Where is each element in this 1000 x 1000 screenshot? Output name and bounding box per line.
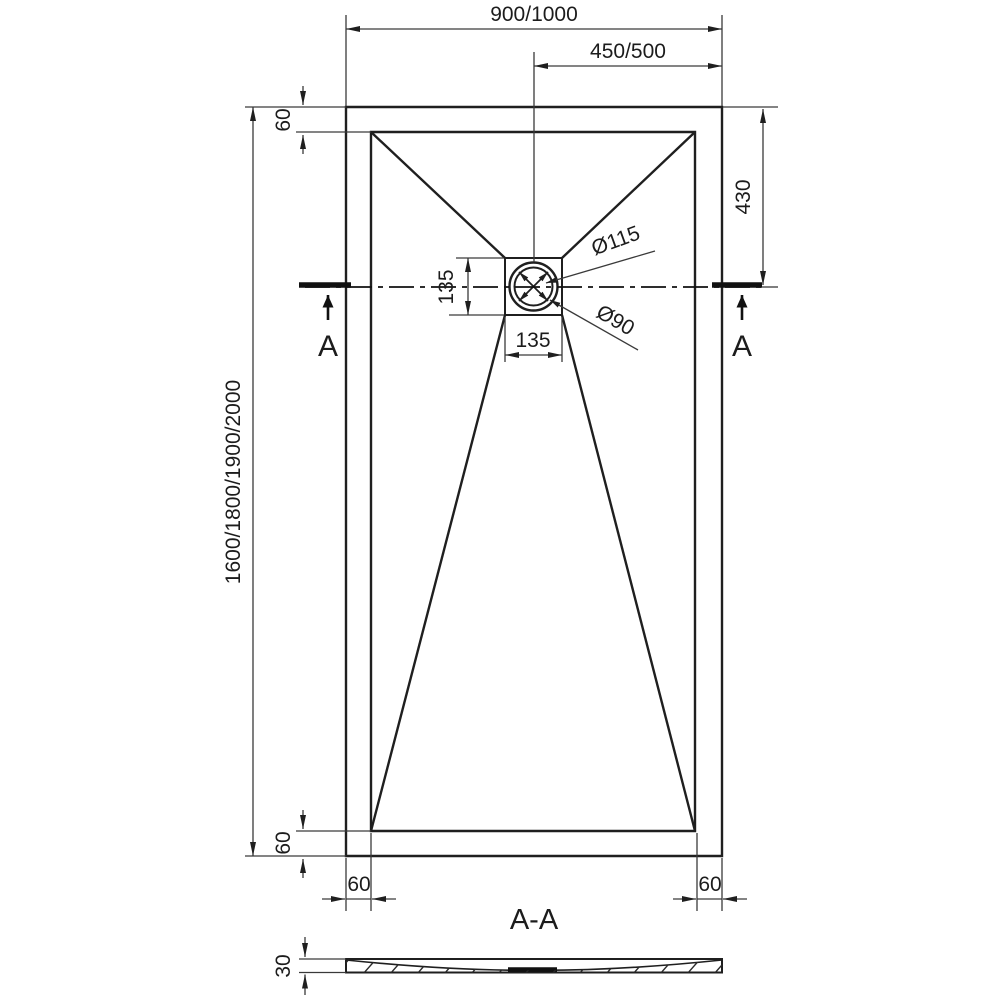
dim-thickness-label: 30 <box>272 954 295 977</box>
dim-drain-center-width: 450/500 <box>534 40 722 66</box>
technical-drawing-canvas: 900/1000 450/500 1600/1800/1900/2000 60 … <box>0 0 1000 1000</box>
dim-rim-bottom-left-h: 60 <box>322 833 396 911</box>
section-marker-right: A <box>732 330 752 363</box>
dim-rim-top: 60 <box>272 86 371 154</box>
dim-rim-top-label: 60 <box>272 108 295 131</box>
section-marker-left: A <box>318 330 338 363</box>
leader-drain-inner-diameter: Ø90 <box>550 300 638 350</box>
dim-rim-bottom-left-h-label: 60 <box>347 873 370 896</box>
dim-drain-from-top-label: 430 <box>732 179 755 214</box>
dim-drain-box-height-label: 135 <box>435 269 458 304</box>
dim-rim-bottom-right-h: 60 <box>673 833 747 911</box>
dim-drain-center-width-label: 450/500 <box>590 40 666 63</box>
dim-rim-bottom-right-h-label: 60 <box>698 873 721 896</box>
dim-overall-length: 1600/1800/1900/2000 <box>222 107 346 856</box>
drain-outer-diameter-label: Ø115 <box>588 222 643 261</box>
section-view: 30 <box>272 937 729 995</box>
dim-rim-bottom-left-v-label: 60 <box>272 831 295 854</box>
dim-thickness: 30 <box>272 937 346 995</box>
dim-drain-box-width: 135 <box>505 317 562 362</box>
dim-overall-length-label: 1600/1800/1900/2000 <box>222 380 245 584</box>
drain-inner-diameter-label: Ø90 <box>592 300 638 340</box>
dim-drain-from-top: 430 <box>723 107 778 287</box>
dim-overall-width-label: 900/1000 <box>490 3 578 26</box>
dim-rim-bottom-left-v: 60 <box>272 810 371 878</box>
dim-drain-box-width-label: 135 <box>515 329 550 352</box>
shower-tray-drawing: 900/1000 450/500 1600/1800/1900/2000 60 … <box>0 0 1000 1000</box>
section-title: A-A <box>510 904 559 936</box>
